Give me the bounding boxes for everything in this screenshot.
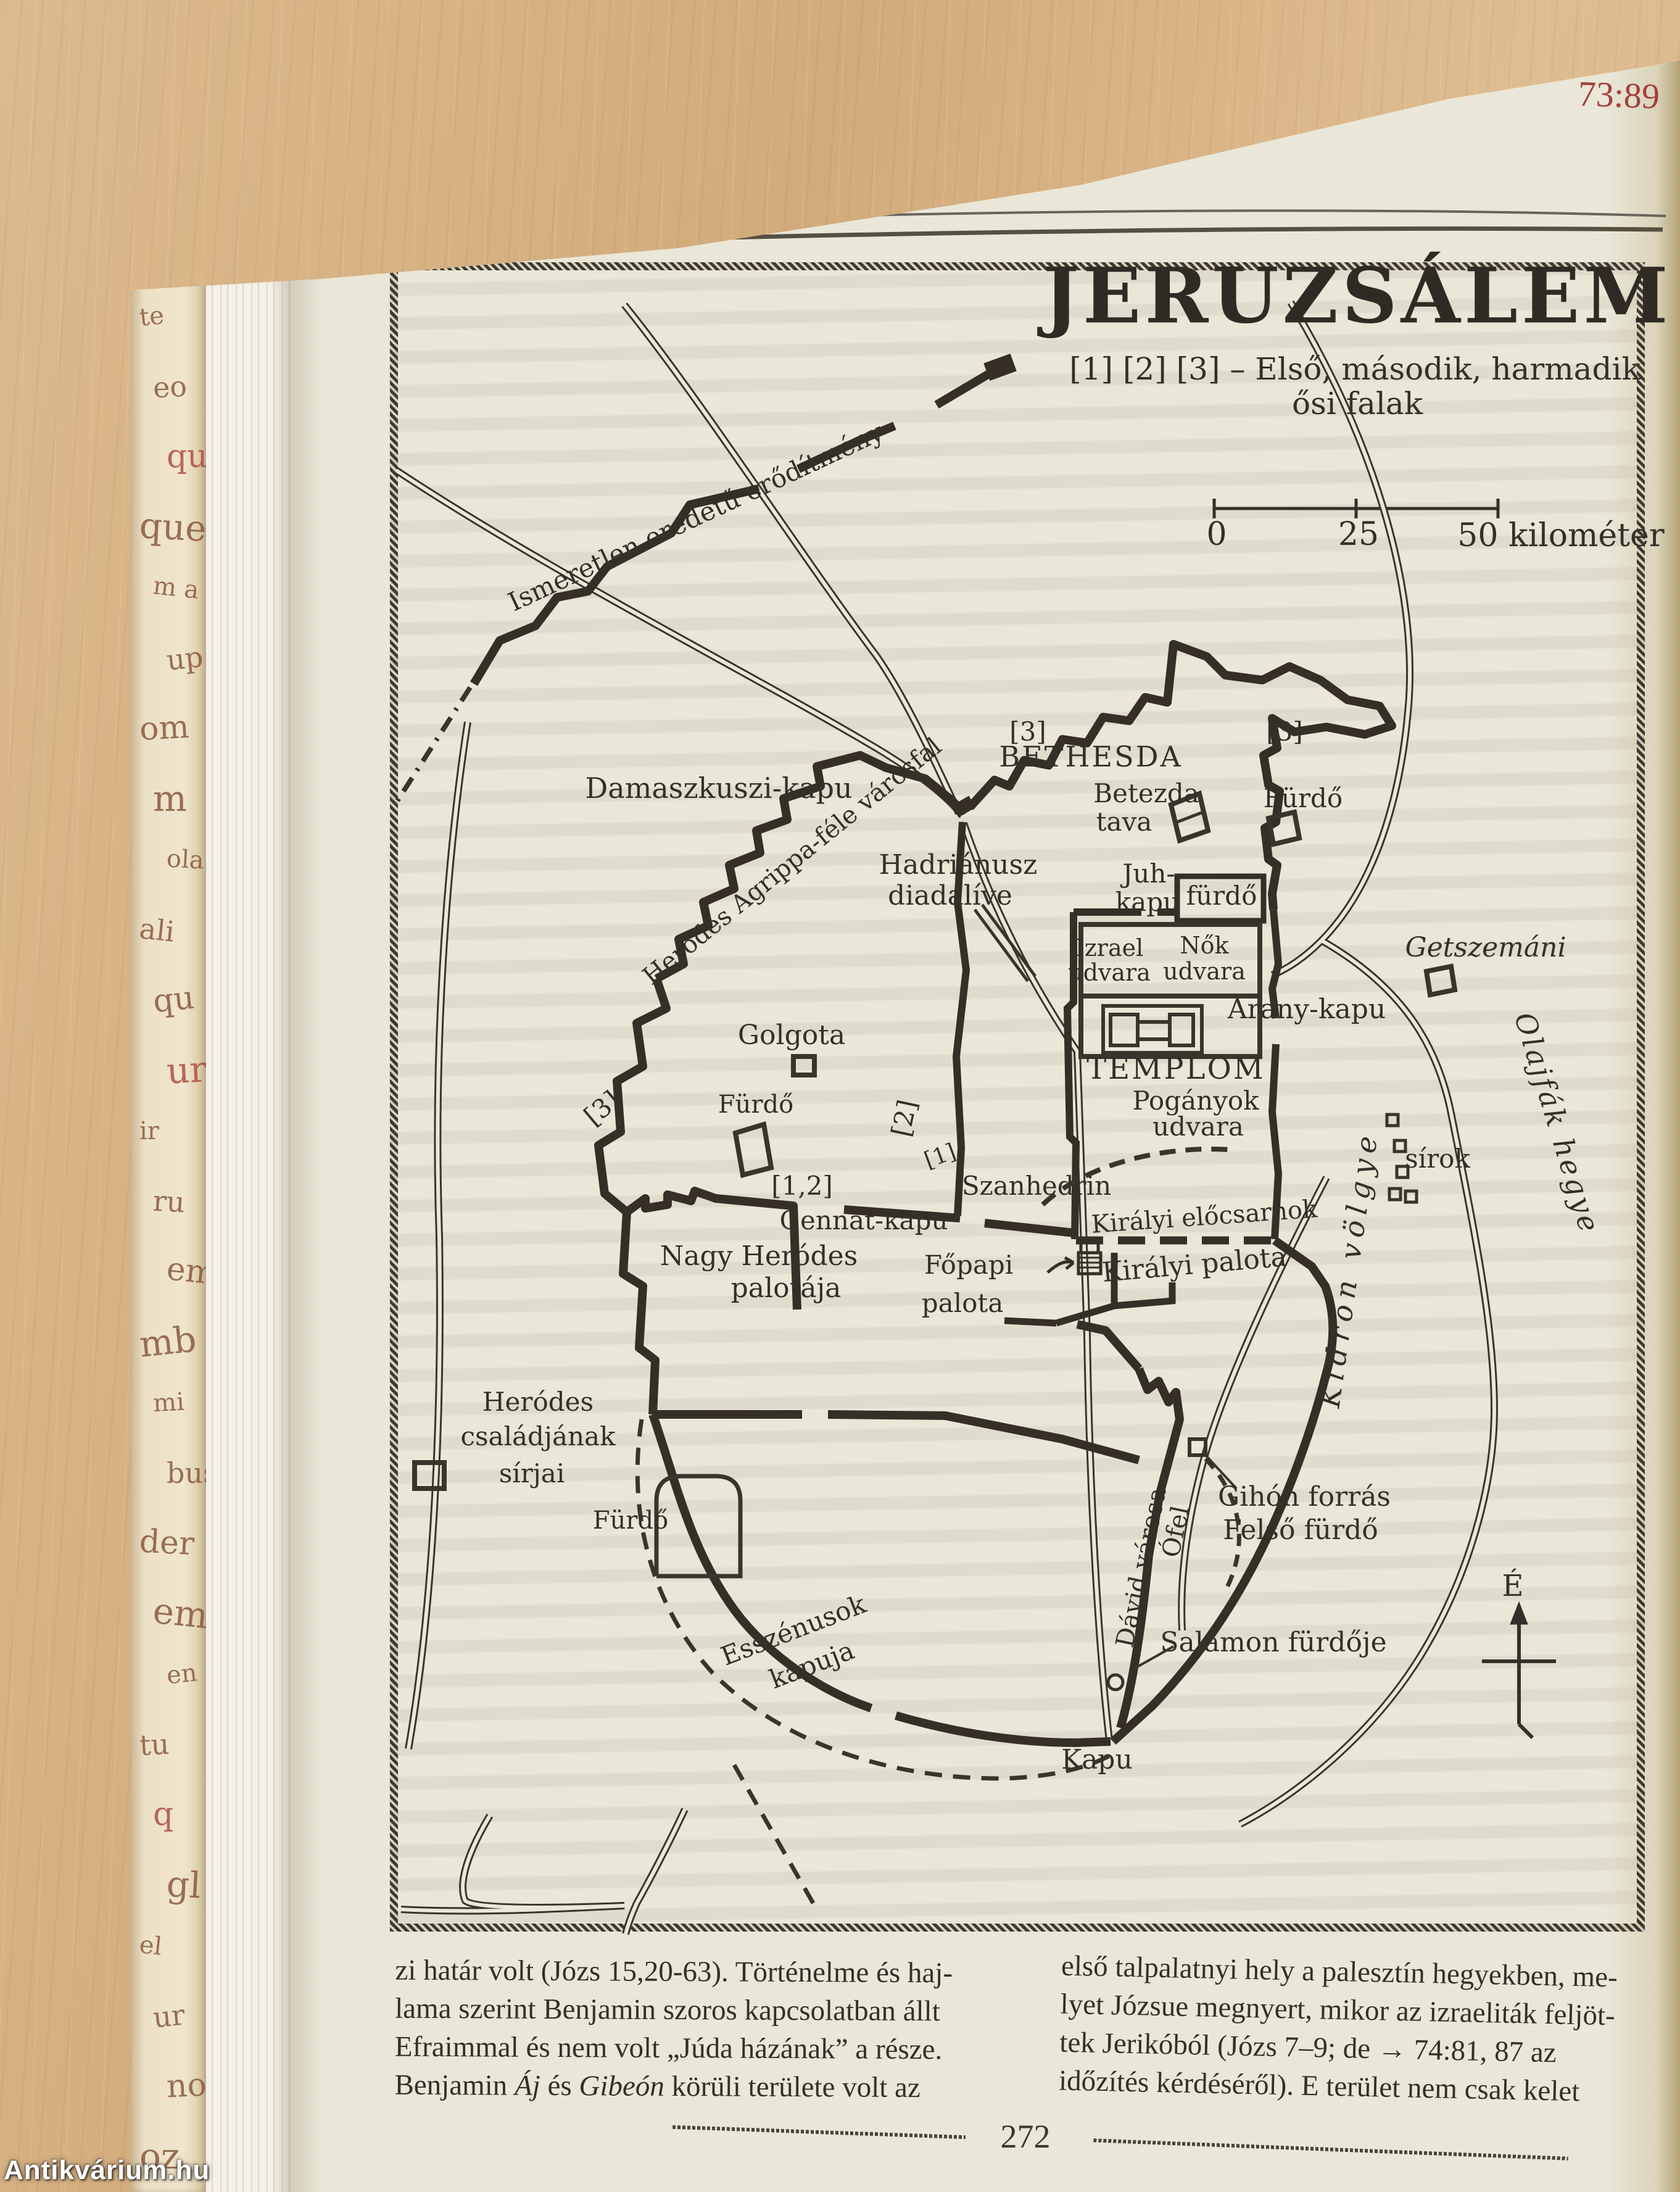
scale-tick-50: 50 kilométer [1457, 517, 1664, 554]
scale-tick-0: 0 [1206, 516, 1227, 553]
map-label: sírjai [499, 1461, 565, 1487]
map-label: sírok [1405, 1146, 1470, 1172]
map-label: Pogányok [1132, 1088, 1259, 1114]
map-label: Felső fürdő [1223, 1517, 1378, 1544]
map-label: Betezda [1093, 781, 1199, 807]
map-label: udvara [1152, 1114, 1244, 1140]
map-legend-line1: [1] [2] [3] – Első, második, harmadik [1069, 351, 1641, 387]
book-page-photo: teeoququem aupommolaaliquurirruemmbmibus… [0, 0, 1680, 2192]
map-label: Juh- [1122, 861, 1175, 887]
wall-first-south [653, 1414, 1139, 1460]
map-label: Gihón forrás [1218, 1484, 1391, 1511]
map-label: Nők [1180, 934, 1228, 957]
body-text-line: Benjamin Áj és Gibeón körüli területe vo… [394, 2066, 952, 2107]
map-label: [1,2] [771, 1173, 833, 1199]
map-label: Fürdő [1264, 786, 1343, 812]
map-label: Fürdő [718, 1092, 793, 1117]
map-structures [415, 794, 1455, 1690]
map-label: Izrael [1075, 936, 1144, 960]
map-label: Nagy Heródes [660, 1243, 858, 1270]
watermark: Antikvárium.hu [4, 2155, 210, 2186]
body-text-line: zi határ volt (Józs 15,20-63). Történelm… [395, 1951, 953, 1993]
body-text-line: Efraimmal és nem volt „Júda házának” a r… [395, 2028, 953, 2069]
map-label: kapu [1115, 889, 1180, 915]
map-label: [3] [1266, 719, 1303, 745]
wall-unknown-fortification [474, 369, 997, 684]
fortification-end-symbol [983, 354, 1016, 381]
map-legend-line2: ősi falak [1292, 386, 1423, 421]
body-left-column: zi határ volt (Józs 15,20-63). Történelm… [394, 1951, 953, 2107]
map-label: Fürdő [593, 1508, 668, 1533]
map-label: udvara [1068, 961, 1151, 984]
map-label: Hadriánusz [879, 852, 1038, 879]
roads-inner [396, 302, 1494, 1934]
map-label: Arany-kapu [1228, 996, 1386, 1023]
map-label: BETHESDA [999, 742, 1182, 771]
map-label: palota [922, 1290, 1004, 1316]
map-label: Heródes [482, 1389, 594, 1415]
map-label: Salamon fürdője [1160, 1629, 1386, 1656]
map-label: palotája [731, 1275, 842, 1302]
map-label: Getszemáni [1405, 934, 1566, 961]
header-rule-thin [710, 210, 1666, 219]
body-text-line: lama szerint Benjamin szoros kapcsolatba… [395, 1990, 953, 2031]
map-label: diadalíve [888, 882, 1012, 910]
roads-outline [396, 302, 1494, 1934]
map-label: udvara [1163, 960, 1246, 983]
map-label: Főpapi [924, 1252, 1013, 1278]
map-label: Golgota [738, 1022, 845, 1049]
map-label: fürdő [1186, 883, 1257, 909]
section-title: BIBLIKUS FÖLDRAJZ [428, 207, 768, 244]
map-label: É [1502, 1571, 1523, 1601]
wall-west [598, 979, 666, 1414]
map-label: Szanhedrin [962, 1173, 1111, 1199]
scale-tick-25: 25 [1338, 516, 1379, 553]
map-title: JERUZSÁLEM [1043, 252, 1672, 341]
north-arrow [1482, 1602, 1556, 1738]
map-label: Damaszkuszi-kapu [585, 774, 852, 802]
map-label: [2] [888, 1098, 921, 1139]
map-label: Gennat-kapu [779, 1208, 948, 1234]
map-label: családjának [460, 1424, 615, 1450]
map-label: Kapu [1061, 1746, 1133, 1774]
header-rule [390, 228, 1663, 247]
page-number: 272 [1001, 2117, 1051, 2156]
map-label: TEMPLOM [1086, 1054, 1265, 1084]
wall-southwest [653, 1414, 1111, 1743]
map-label: tava [1096, 809, 1152, 835]
body-right-column: első talpalatnyi hely a palesztín hegyek… [1059, 1947, 1618, 2112]
